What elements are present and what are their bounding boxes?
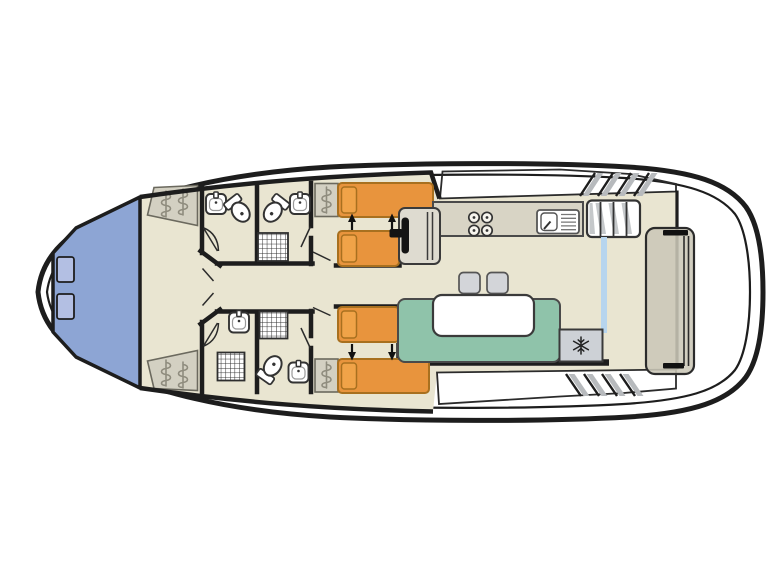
saloon-table	[433, 295, 534, 336]
deck-stairs	[587, 201, 640, 238]
stool	[459, 273, 480, 294]
v-berth-pillow	[57, 257, 74, 282]
patio-door-track	[601, 237, 607, 333]
fridge	[560, 330, 603, 362]
boat-floor-plan	[0, 0, 768, 576]
sink-fixture	[229, 311, 249, 333]
v-berth-bed	[53, 197, 140, 388]
shower-tray	[258, 233, 288, 261]
galley-sink-icon	[537, 210, 579, 234]
stool	[487, 273, 508, 294]
sink-fixture	[290, 192, 310, 214]
sink-fixture	[289, 361, 309, 383]
boat-floor-plan-page	[0, 0, 768, 576]
bed-pillow	[342, 363, 357, 389]
shower-tray	[218, 353, 245, 381]
bed-pillow	[342, 187, 357, 213]
aft-bench-seat	[646, 228, 694, 374]
galley	[433, 202, 583, 236]
aft-bench	[646, 228, 694, 374]
bench-hinge	[663, 363, 684, 369]
v-berth-pillow	[57, 294, 74, 319]
bed-pillow	[342, 235, 357, 262]
shower-tray	[260, 312, 288, 339]
bow-cabin	[53, 197, 140, 388]
sink-fixture	[206, 192, 226, 214]
bed-pillow	[342, 311, 357, 338]
bench-hinge	[663, 230, 688, 236]
